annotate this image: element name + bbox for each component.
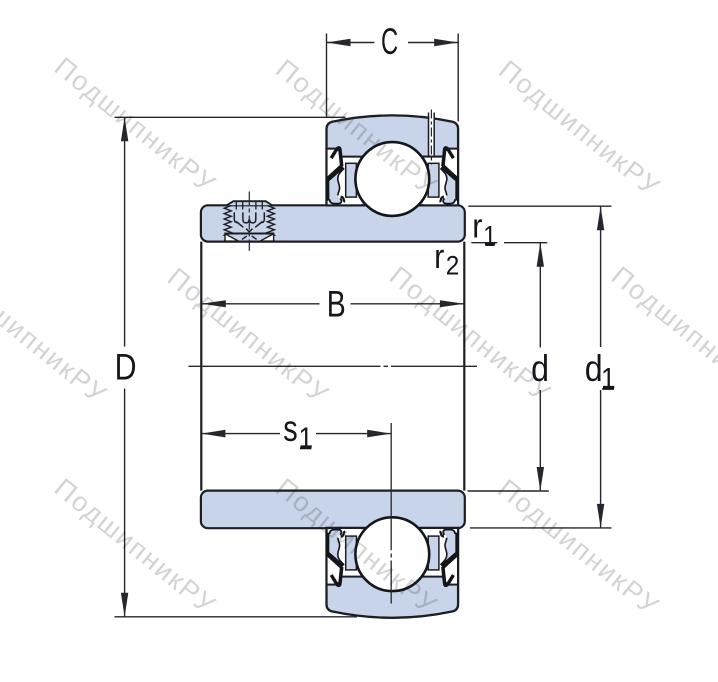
svg-text:r: r xyxy=(434,238,444,276)
svg-text:d: d xyxy=(585,349,603,390)
svg-text:1: 1 xyxy=(483,221,496,250)
svg-text:s: s xyxy=(283,409,297,450)
svg-text:2: 2 xyxy=(446,252,460,281)
svg-text:r: r xyxy=(472,207,482,245)
svg-text:C: C xyxy=(381,21,398,63)
svg-text:D: D xyxy=(115,347,137,389)
svg-text:B: B xyxy=(327,283,346,324)
